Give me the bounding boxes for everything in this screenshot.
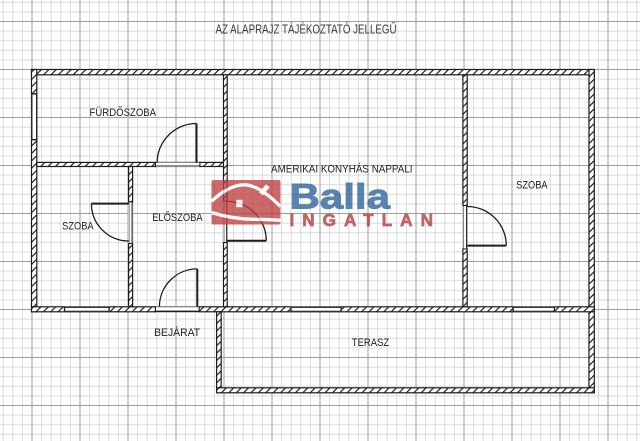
svg-text:AMERIKAI KONYHÁS NAPPALI: AMERIKAI KONYHÁS NAPPALI [271,163,413,176]
svg-text:SZOBA: SZOBA [62,221,94,233]
svg-text:AZ ALAPRAJZ TÁJÉKOZTATÓ JELLEG: AZ ALAPRAJZ TÁJÉKOZTATÓ JELLEGŰ [216,22,397,37]
svg-text:FÜRDŐSZOBA: FÜRDŐSZOBA [90,105,157,119]
svg-text:BEJÁRAT: BEJÁRAT [154,326,200,339]
svg-text:ELŐSZOBA: ELŐSZOBA [152,210,203,224]
svg-text:TERASZ: TERASZ [352,337,390,349]
svg-text:SZOBA: SZOBA [516,179,548,191]
